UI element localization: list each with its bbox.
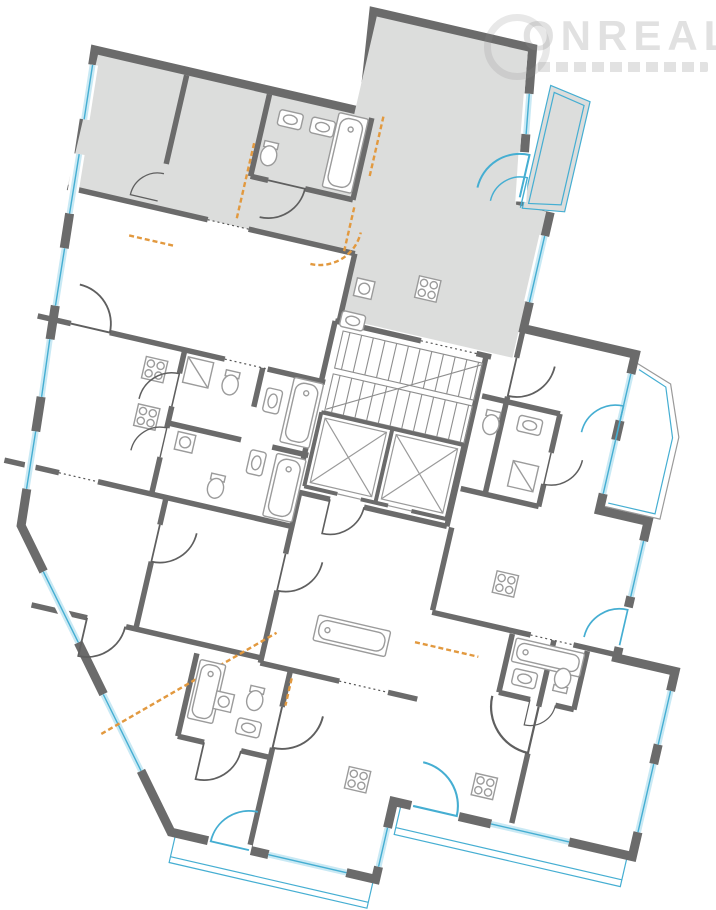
washer-icon: [353, 278, 375, 300]
shower-icon: [183, 357, 214, 388]
stove-icon: [344, 767, 370, 793]
floor-plan-canvas: [0, 0, 716, 910]
stove-icon: [141, 356, 167, 382]
washer-icon: [174, 432, 196, 454]
shower-icon: [508, 461, 539, 492]
stove-icon: [415, 276, 441, 302]
stove-icon: [134, 404, 160, 430]
stove-icon: [471, 773, 497, 799]
washer-icon: [213, 691, 235, 713]
floor-plan-page: { "meta": { "type": "floor-plan", "rotat…: [0, 0, 716, 910]
stove-icon: [492, 571, 518, 597]
